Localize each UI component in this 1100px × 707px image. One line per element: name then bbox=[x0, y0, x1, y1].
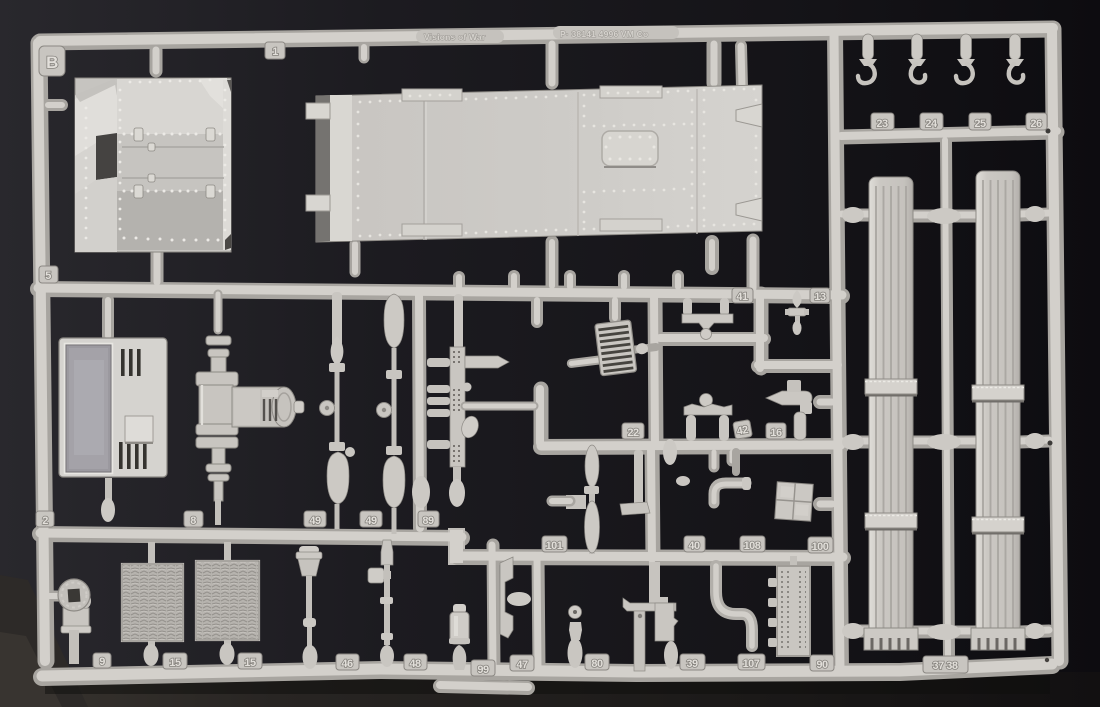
svg-text:39: 39 bbox=[686, 658, 698, 670]
svg-text:25: 25 bbox=[974, 118, 986, 130]
svg-text:9: 9 bbox=[99, 656, 105, 668]
svg-text:89: 89 bbox=[422, 515, 434, 527]
svg-text:99: 99 bbox=[477, 664, 489, 676]
svg-text:37 38: 37 38 bbox=[932, 660, 957, 672]
svg-text:2: 2 bbox=[42, 515, 48, 527]
svg-text:49: 49 bbox=[365, 515, 377, 527]
svg-text:90: 90 bbox=[816, 659, 828, 671]
svg-text:5: 5 bbox=[45, 270, 51, 282]
svg-text:8: 8 bbox=[190, 515, 196, 527]
svg-text:Visions of War: Visions of War bbox=[424, 32, 486, 42]
svg-text:22: 22 bbox=[627, 427, 639, 439]
svg-text:1: 1 bbox=[272, 46, 278, 58]
svg-text:80: 80 bbox=[591, 658, 603, 670]
svg-text:49: 49 bbox=[309, 515, 321, 527]
svg-text:40: 40 bbox=[688, 540, 700, 552]
svg-text:16: 16 bbox=[770, 427, 782, 439]
svg-text:101: 101 bbox=[546, 540, 563, 552]
svg-text:13: 13 bbox=[814, 291, 826, 303]
svg-text:100: 100 bbox=[812, 541, 829, 553]
svg-text:46: 46 bbox=[341, 658, 353, 670]
svg-text:23: 23 bbox=[876, 118, 888, 130]
svg-text:15: 15 bbox=[244, 657, 256, 669]
svg-text:26: 26 bbox=[1030, 118, 1042, 130]
svg-text:48: 48 bbox=[409, 658, 421, 670]
svg-text:P· 38141 4996 VM Co: P· 38141 4996 VM Co bbox=[560, 29, 648, 39]
svg-text:24: 24 bbox=[925, 118, 938, 130]
svg-text:108: 108 bbox=[744, 540, 761, 552]
svg-text:41: 41 bbox=[736, 291, 748, 303]
svg-text:B: B bbox=[46, 53, 58, 72]
svg-text:107: 107 bbox=[743, 658, 760, 670]
svg-text:15: 15 bbox=[169, 657, 181, 669]
svg-text:47: 47 bbox=[516, 659, 528, 671]
